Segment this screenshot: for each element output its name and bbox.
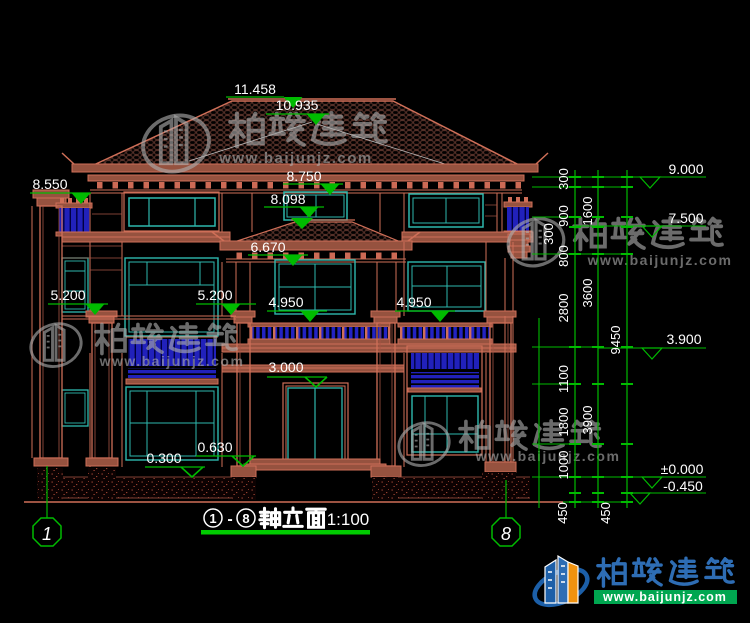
svg-text:4.950: 4.950 — [268, 294, 303, 310]
svg-text:2800: 2800 — [556, 294, 571, 323]
svg-text:900: 900 — [556, 205, 571, 227]
svg-text:-0.450: -0.450 — [663, 478, 703, 494]
svg-text:5.200: 5.200 — [197, 287, 232, 303]
svg-text:4.950: 4.950 — [396, 294, 431, 310]
svg-text:8.550: 8.550 — [32, 176, 67, 192]
svg-text:0.630: 0.630 — [197, 439, 232, 455]
svg-text:9450: 9450 — [608, 326, 623, 355]
svg-text:±0.000: ±0.000 — [661, 461, 704, 477]
svg-text:www.baijunjz.com: www.baijunjz.com — [99, 353, 245, 369]
svg-text:1800: 1800 — [556, 408, 571, 437]
svg-text:3900: 3900 — [580, 406, 595, 435]
svg-text:11.458: 11.458 — [234, 81, 276, 97]
svg-text:-: - — [227, 511, 232, 528]
svg-text:1: 1 — [42, 524, 52, 544]
svg-text:10.935: 10.935 — [276, 97, 319, 113]
svg-text:1000: 1000 — [556, 451, 571, 480]
svg-text:5.200: 5.200 — [50, 287, 85, 303]
svg-text:3600: 3600 — [580, 279, 595, 308]
svg-text:1100: 1100 — [556, 365, 571, 393]
svg-text:6.670: 6.670 — [250, 239, 285, 255]
svg-text:3.900: 3.900 — [666, 331, 701, 347]
svg-text:8: 8 — [501, 524, 511, 544]
svg-text:www.baijunjz.com: www.baijunjz.com — [218, 150, 372, 167]
svg-text:300: 300 — [556, 168, 571, 190]
svg-text:450: 450 — [598, 502, 613, 524]
svg-text:1: 1 — [209, 511, 216, 526]
svg-text:www.baijunjz.com: www.baijunjz.com — [602, 590, 727, 604]
svg-text:300: 300 — [541, 223, 556, 245]
svg-text:9.000: 9.000 — [668, 161, 703, 177]
svg-text:800: 800 — [556, 245, 571, 267]
svg-text:8.098: 8.098 — [270, 191, 305, 207]
svg-text:0.300: 0.300 — [146, 450, 181, 466]
svg-text:7.500: 7.500 — [668, 210, 703, 226]
svg-text:8.750: 8.750 — [286, 168, 321, 184]
svg-text:3.000: 3.000 — [268, 359, 303, 375]
svg-text:450: 450 — [555, 502, 570, 524]
svg-text:8: 8 — [242, 511, 249, 526]
svg-text:1600: 1600 — [580, 197, 595, 226]
svg-text:1:100: 1:100 — [327, 510, 370, 529]
